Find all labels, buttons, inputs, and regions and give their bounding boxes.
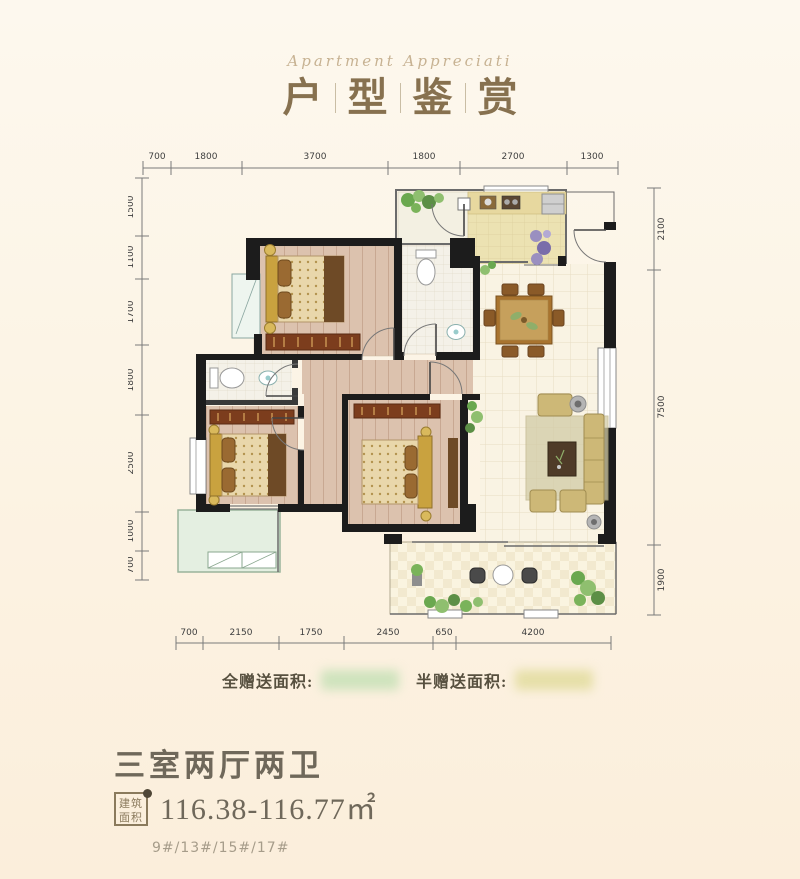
- pillow: [405, 474, 417, 498]
- poster-header: Apartment Appreciati 户 型 鉴 赏: [0, 52, 800, 118]
- gift-full-area: 全赠送面积:: [222, 668, 399, 692]
- dining-chair: [502, 284, 518, 295]
- dim-label: 1800: [195, 152, 218, 162]
- nightstand: [265, 245, 276, 256]
- drying-rack: [208, 552, 276, 568]
- dim-label: 2700: [502, 152, 525, 162]
- dining-chair: [528, 346, 544, 357]
- bed-headboard: [266, 256, 278, 322]
- balcony-post: [524, 610, 558, 618]
- pillow: [405, 446, 417, 470]
- title-separator: [465, 83, 466, 113]
- pillow: [222, 468, 235, 492]
- bed-headboard: [418, 436, 432, 508]
- pillow: [278, 292, 291, 318]
- table-decor: [521, 317, 527, 323]
- armchair: [560, 490, 586, 512]
- subtitle-script: Apartment Appreciati: [0, 52, 800, 70]
- balcony-chair: [522, 568, 537, 583]
- balcony-furniture: [470, 565, 537, 585]
- balcony-chair: [470, 568, 485, 583]
- area-badge: 建筑 面积: [114, 792, 148, 826]
- nightstand: [265, 323, 276, 334]
- corridor-floor: [302, 360, 473, 394]
- armchair: [530, 490, 556, 512]
- page-title: 户 型 鉴 赏: [0, 78, 800, 118]
- gift-area-row: 全赠送面积: 半赠送面积:: [0, 668, 800, 698]
- side-table-top: [591, 519, 597, 525]
- burner: [504, 199, 510, 205]
- side-table-top: [575, 401, 582, 408]
- bed-headboard: [210, 434, 222, 496]
- wardrobe: [266, 334, 360, 350]
- dim-label: 1900: [657, 568, 667, 591]
- dim-label: 2450: [377, 628, 400, 638]
- toilet: [417, 259, 435, 285]
- wardrobe: [210, 410, 294, 424]
- sink-bowl: [485, 199, 492, 206]
- dining-chair: [502, 346, 518, 357]
- dim-label: 1300: [581, 152, 604, 162]
- pillow: [222, 438, 235, 462]
- floor-plan: 700 1800 3700 1800 2700 1300 1500 1100 1…: [128, 138, 672, 672]
- toilet: [220, 368, 244, 388]
- title-separator: [400, 83, 401, 113]
- dim-label: 2500: [128, 451, 136, 474]
- table-decor: [557, 465, 561, 469]
- wardrobe: [354, 404, 440, 418]
- corridor-opening: [473, 360, 480, 394]
- corridor-stub-floor: [304, 394, 342, 504]
- dim-label: 2150: [230, 628, 253, 638]
- drain: [266, 376, 271, 381]
- area-value: 116.38-116.77㎡: [160, 792, 377, 828]
- dim-label: 2100: [657, 217, 667, 240]
- toilet-tank: [210, 368, 218, 388]
- drain: [454, 330, 459, 335]
- area-badge-line1: 建筑: [116, 797, 146, 811]
- dining-chair: [484, 310, 495, 326]
- area-row: 建筑 面积 116.38-116.77㎡: [114, 792, 377, 828]
- dim-label: 1000: [128, 519, 136, 542]
- dim-label: 650: [435, 628, 452, 638]
- dining-chair: [528, 284, 544, 295]
- gift-half-label: 半赠送面积:: [416, 668, 507, 692]
- title-char: 型: [348, 78, 388, 118]
- title-char: 户: [283, 78, 323, 118]
- entry-door: [574, 230, 606, 262]
- armchair: [538, 394, 572, 416]
- balcony-table: [493, 565, 513, 585]
- dim-label: 7500: [657, 395, 667, 418]
- dining-chair: [553, 310, 564, 326]
- dim-label: 1100: [128, 245, 136, 268]
- layout-title: 三室两厅两卫: [114, 740, 324, 785]
- dim-label: 1500: [128, 195, 136, 218]
- badge-dot-icon: [143, 789, 152, 798]
- dim-label: 3700: [304, 152, 327, 162]
- gift-half-value-blurred: [515, 670, 593, 690]
- title-char: 鉴: [413, 78, 453, 118]
- dim-label: 1700: [128, 300, 136, 323]
- master-bedroom-furniture: [209, 410, 294, 505]
- floor-plan-container: 700 1800 3700 1800 2700 1300 1500 1100 1…: [128, 138, 672, 672]
- master-bedroom-window: [190, 438, 206, 494]
- gift-full-value-blurred: [321, 670, 399, 690]
- coffee-table: [548, 442, 576, 476]
- burner: [512, 199, 518, 205]
- gift-full-label: 全赠送面积:: [222, 668, 313, 692]
- toilet-tank: [416, 250, 436, 258]
- desk: [448, 438, 458, 508]
- kitchen-fixtures: [458, 192, 566, 214]
- nightstand: [421, 511, 431, 521]
- pillow: [278, 260, 291, 286]
- dim-label: 4200: [522, 628, 545, 638]
- dim-label: 700: [128, 556, 136, 573]
- bathroom-b-floor: [206, 360, 292, 404]
- title-char: 赏: [478, 78, 518, 118]
- dim-label: 1750: [300, 628, 323, 638]
- building-numbers: 9#/13#/15#/17#: [152, 840, 289, 856]
- sofa: [584, 414, 604, 504]
- dim-label: 700: [148, 152, 165, 162]
- bed-runner: [324, 256, 344, 322]
- dim-label: 700: [180, 628, 197, 638]
- gift-half-area: 半赠送面积:: [416, 668, 593, 692]
- dim-label: 1800: [413, 152, 436, 162]
- area-badge-line2: 面积: [116, 811, 146, 825]
- bed-runner: [268, 434, 286, 496]
- dim-label: 1800: [128, 368, 136, 391]
- title-separator: [335, 83, 336, 113]
